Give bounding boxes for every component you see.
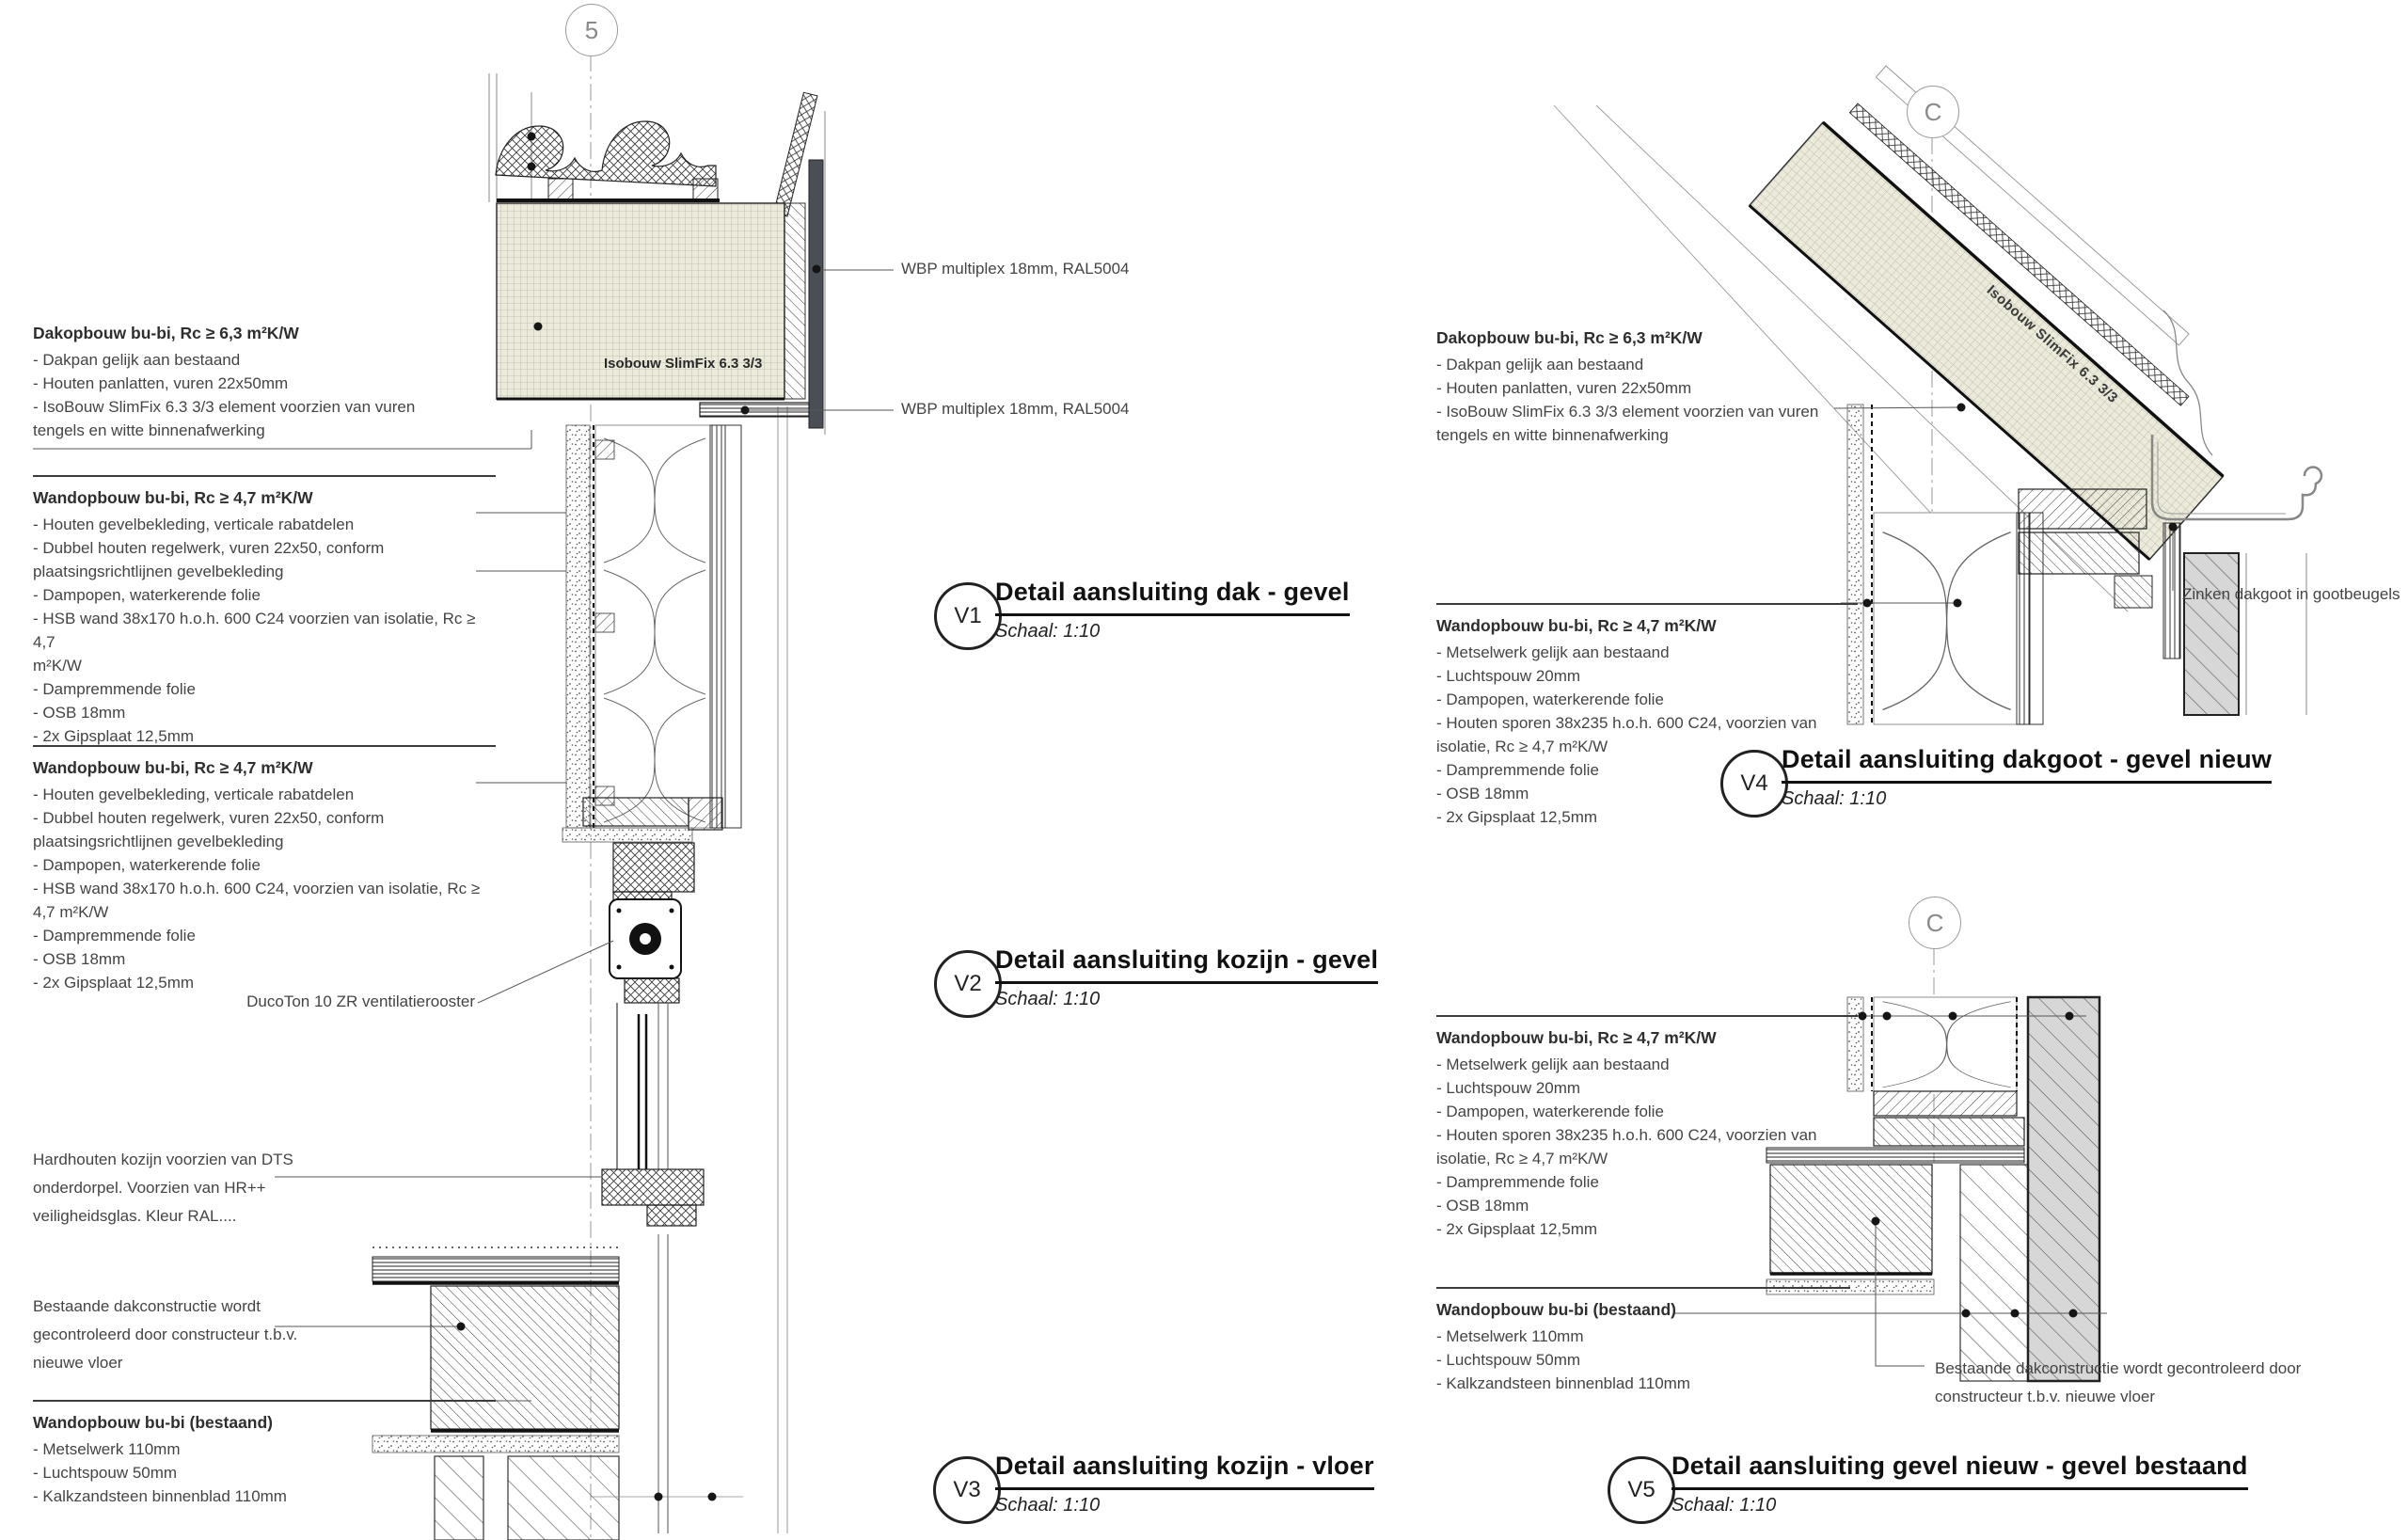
spec-item: - Luchtspouw 20mm xyxy=(1436,1076,1858,1100)
detail-title-text: Detail aansluiting kozijn - gevel xyxy=(995,945,1378,984)
spec-block-title: Wandopbouw bu-bi (bestaand) xyxy=(1436,1297,1850,1322)
spec-block-title: Wandopbouw bu-bi, Rc ≥ 4,7 m²K/W xyxy=(1436,1025,1858,1050)
detail-title-v5: Detail aansluiting gevel nieuw - gevel b… xyxy=(1671,1452,2248,1516)
spec-block-4: Bestaande dakconstructie wordtgecontrole… xyxy=(33,1293,409,1377)
spec-block-3: Hardhouten kozijn voorzien van DTSonderd… xyxy=(33,1146,409,1230)
spec-item: - Luchtspouw 20mm xyxy=(1436,664,1858,688)
spec-block-0: Dakopbouw bu-bi, Rc ≥ 6,3 m²K/W- Dakpan … xyxy=(33,321,496,442)
detail-scale-text: Schaal: 1:10 xyxy=(995,989,1378,1010)
spec-item: - Metselwerk gelijk aan bestaand xyxy=(1436,1053,1858,1076)
spec-item: - OSB 18mm xyxy=(33,947,496,971)
spec-item: - 2x Gipsplaat 12,5mm xyxy=(33,971,496,994)
spec-block-title: Dakopbouw bu-bi, Rc ≥ 6,3 m²K/W xyxy=(33,321,496,345)
spec-item: - IsoBouw SlimFix 6.3 3/3 element voorzi… xyxy=(33,395,496,419)
detail-sheet: 5 C C V1 Detail aansluiting dak - gevel … xyxy=(0,0,2408,1540)
detail-circle-v1: V1 xyxy=(934,582,1002,650)
spec-item: - Dampremmende folie xyxy=(33,677,496,701)
roof-tiles xyxy=(496,121,716,186)
detail-title-v2: Detail aansluiting kozijn - gevel Schaal… xyxy=(995,945,1378,1010)
spec-item: - Dampremmende folie xyxy=(1436,1170,1858,1194)
grid-bubble-c-top: C xyxy=(1907,86,1959,138)
spec-item: veiligheidsglas. Kleur RAL.... xyxy=(33,1202,409,1230)
grid-bubble-c-bottom: C xyxy=(1909,897,1961,949)
spec-item: - Dampopen, waterkerende folie xyxy=(33,583,496,607)
spec-item: - Houten panlatten, vuren 22x50mm xyxy=(33,372,496,395)
spec-item: - Dakpan gelijk aan bestaand xyxy=(1436,353,1858,376)
spec-item: - Dampopen, waterkerende folie xyxy=(1436,688,1858,711)
spec-item: - Metselwerk 110mm xyxy=(33,1437,496,1461)
spec-item: - Metselwerk gelijk aan bestaand xyxy=(1436,641,1858,664)
spec-block-2: Wandopbouw bu-bi, Rc ≥ 4,7 m²K/W- Houten… xyxy=(33,745,496,994)
detail-title-text: Detail aansluiting dakgoot - gevel nieuw xyxy=(1782,745,2272,784)
detail-circle-v5: V5 xyxy=(1608,1456,1675,1524)
spec-item: - IsoBouw SlimFix 6.3 3/3 element voorzi… xyxy=(1436,400,1858,423)
spec-item: - Dampopen, waterkerende folie xyxy=(1436,1100,1858,1123)
spec-block-6: Dakopbouw bu-bi, Rc ≥ 6,3 m²K/W- Dakpan … xyxy=(1436,325,1858,447)
detail-scale-text: Schaal: 1:10 xyxy=(995,1495,1374,1516)
spec-item: nieuwe vloer xyxy=(33,1349,409,1377)
spec-item: - Houten sporen 38x235 h.o.h. 600 C24, v… xyxy=(1436,1123,1858,1147)
callout-ducoton: DucoTon 10 ZR ventilatierooster xyxy=(235,992,475,1011)
spec-item: - Dampopen, waterkerende folie xyxy=(33,853,496,877)
spec-item: - OSB 18mm xyxy=(1436,1194,1858,1217)
spec-item: gecontroleerd door constructeur t.b.v. xyxy=(33,1321,409,1349)
slimfix-label-v1: Isobouw SlimFix 6.3 3/3 xyxy=(604,356,762,372)
spec-item: - Luchtspouw 50mm xyxy=(33,1461,496,1484)
spec-item: - 2x Gipsplaat 12,5mm xyxy=(1436,1217,1858,1241)
spec-item: 4,7 m²K/W xyxy=(33,900,496,924)
callout-bestaande-dakconstructie: Bestaande dakconstructie wordt gecontrol… xyxy=(1935,1355,2301,1411)
detail-scale-text: Schaal: 1:10 xyxy=(1782,788,2272,810)
spec-item: - Kalkzandsteen binnenblad 110mm xyxy=(33,1484,496,1508)
spec-item: tengels en witte binnenafwerking xyxy=(33,419,496,442)
spec-item: - Luchtspouw 50mm xyxy=(1436,1348,1850,1372)
detail-title-text: Detail aansluiting dak - gevel xyxy=(995,578,1350,616)
spec-block-title: Dakopbouw bu-bi, Rc ≥ 6,3 m²K/W xyxy=(1436,325,1858,350)
detail-scale-text: Schaal: 1:10 xyxy=(995,621,1350,643)
detail-title-text: Detail aansluiting kozijn - vloer xyxy=(995,1452,1374,1490)
drawing-v1-roof-facade xyxy=(496,92,823,828)
detail-scale-text: Schaal: 1:10 xyxy=(1671,1495,2248,1516)
spec-item: plaatsingsrichtlijnen gevelbekleding xyxy=(33,830,496,853)
callout-wbp-multiplex-top: WBP multiplex 18mm, RAL5004 xyxy=(901,260,1130,278)
detail-circle-v3: V3 xyxy=(933,1456,1001,1524)
spec-item: - Kalkzandsteen binnenblad 110mm xyxy=(1436,1372,1850,1395)
spec-item: - Metselwerk 110mm xyxy=(1436,1325,1850,1348)
spec-item: - Houten sporen 38x235 h.o.h. 600 C24, v… xyxy=(1436,711,1858,735)
spec-item: - Dubbel houten regelwerk, vuren 22x50, … xyxy=(33,536,496,560)
spec-item: tengels en witte binnenafwerking xyxy=(1436,423,1858,447)
spec-item: - Houten gevelbekleding, verticale rabat… xyxy=(33,513,496,536)
spec-item: isolatie, Rc ≥ 4,7 m²K/W xyxy=(1436,1147,1858,1170)
grid-bubble-5: 5 xyxy=(565,4,618,56)
spec-item: - Houten gevelbekleding, verticale rabat… xyxy=(33,783,496,806)
callout-zinken-dakgoot: Zinken dakgoot in gootbeugels xyxy=(2182,585,2400,604)
detail-title-v1: Detail aansluiting dak - gevel Schaal: 1… xyxy=(995,578,1350,643)
spec-block-8: Wandopbouw bu-bi, Rc ≥ 4,7 m²K/W- Metsel… xyxy=(1436,1015,1858,1241)
detail-title-v3: Detail aansluiting kozijn - vloer Schaal… xyxy=(995,1452,1374,1516)
spec-item: - HSB wand 38x170 h.o.h. 600 C24, voorzi… xyxy=(33,877,496,900)
spec-block-title: Wandopbouw bu-bi, Rc ≥ 4,7 m²K/W xyxy=(33,485,496,510)
spec-item: - HSB wand 38x170 h.o.h. 600 C24 voorzie… xyxy=(33,607,496,654)
spec-block-title: Wandopbouw bu-bi, Rc ≥ 4,7 m²K/W xyxy=(33,755,496,780)
spec-block-1: Wandopbouw bu-bi, Rc ≥ 4,7 m²K/W- Houten… xyxy=(33,475,496,748)
spec-item: plaatsingsrichtlijnen gevelbekleding xyxy=(33,560,496,583)
spec-item: - OSB 18mm xyxy=(33,701,496,724)
detail-title-v4: Detail aansluiting dakgoot - gevel nieuw… xyxy=(1782,745,2272,810)
drawing-v2-window-facade xyxy=(562,798,722,1169)
spec-item: - Dakpan gelijk aan bestaand xyxy=(33,348,496,372)
callout-wbp-multiplex-bottom: WBP multiplex 18mm, RAL5004 xyxy=(901,400,1130,419)
spec-item: Bestaande dakconstructie wordt xyxy=(33,1293,409,1321)
detail-title-text: Detail aansluiting gevel nieuw - gevel b… xyxy=(1671,1452,2248,1490)
spec-block-9: Wandopbouw bu-bi (bestaand)- Metselwerk … xyxy=(1436,1287,1850,1395)
text-line: constructeur t.b.v. nieuwe vloer xyxy=(1935,1383,2301,1411)
spec-block-5: Wandopbouw bu-bi (bestaand)- Metselwerk … xyxy=(33,1400,496,1508)
detail-circle-v4: V4 xyxy=(1720,750,1788,818)
spec-item: - Dubbel houten regelwerk, vuren 22x50, … xyxy=(33,806,496,830)
spec-block-title: Wandopbouw bu-bi (bestaand) xyxy=(33,1410,496,1435)
spec-item: onderdorpel. Voorzien van HR++ xyxy=(33,1174,409,1202)
spec-block-title: Wandopbouw bu-bi, Rc ≥ 4,7 m²K/W xyxy=(1436,613,1858,638)
detail-circle-v2: V2 xyxy=(934,950,1002,1018)
spec-item: m²K/W xyxy=(33,654,496,677)
spec-item: Hardhouten kozijn voorzien van DTS xyxy=(33,1146,409,1174)
spec-item: - Houten panlatten, vuren 22x50mm xyxy=(1436,376,1858,400)
spec-item: - Dampremmende folie xyxy=(33,924,496,947)
text-line: Bestaande dakconstructie wordt gecontrol… xyxy=(1935,1355,2301,1383)
